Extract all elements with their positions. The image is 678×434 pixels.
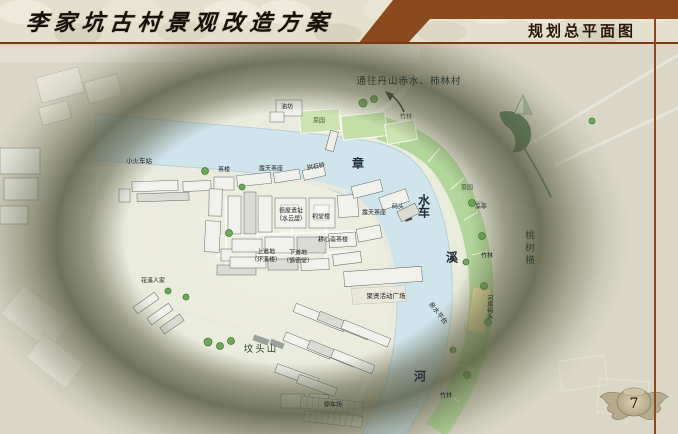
slide-title: 李家坑古村景观改造方案 — [25, 5, 336, 37]
header: 李家坑古村景观改造方案 规划总平面图 — [0, 0, 678, 42]
vertical-rule — [654, 19, 656, 434]
slide: 7 通往丹山赤水、柿林村油坊菜园竹林小火车站茶楼露天茶座拱石桥章菜园水车凉亭码头… — [0, 0, 678, 434]
section-title: 规划总平面图 — [528, 20, 636, 41]
header-rule — [0, 42, 678, 44]
page-number: 7 — [630, 396, 639, 412]
site-plan-map: 7 — [0, 0, 678, 434]
